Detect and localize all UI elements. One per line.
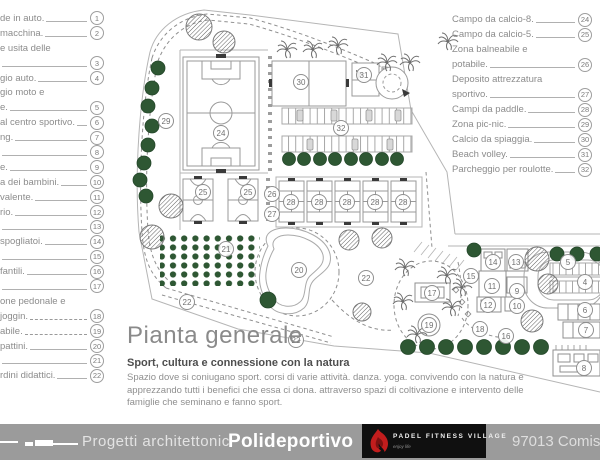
legend-row: Zona balneabile e: [452, 42, 592, 57]
legend-row: ng.7: [0, 130, 104, 145]
legend-number: 22: [90, 369, 104, 383]
legend-number: 8: [90, 145, 104, 159]
legend-leader-line: [25, 334, 87, 335]
legend-label: gio moto e: [0, 87, 44, 98]
legend-leader-line: [528, 112, 575, 113]
legend-row: joggin.18: [0, 309, 104, 324]
footer-label: Progetti architettonici: [82, 433, 234, 450]
legend-leader-line: [15, 140, 87, 141]
legend-label: Deposito attrezzatura: [452, 74, 542, 85]
legend-number: 24: [578, 13, 592, 27]
legend-leader-line: [15, 215, 87, 216]
legend-row: 3: [0, 56, 104, 71]
legend-row: 21: [0, 353, 104, 368]
flame-icon: [365, 427, 391, 455]
legend-number: 11: [90, 190, 104, 204]
legend-number: 1: [90, 11, 104, 25]
footer-bar: Progetti architettonici Polideportivo PA…: [0, 424, 600, 460]
legend-row: spogliatoi.14: [0, 234, 104, 249]
legend-number: 7: [90, 131, 104, 145]
legend-number: 4: [90, 71, 104, 85]
legend-label: valente.: [0, 192, 33, 203]
didactic-garden-grid: [160, 234, 260, 286]
legend-leader-line: [2, 66, 87, 67]
legend-label: pattini.: [0, 341, 28, 352]
legend-leader-line: [30, 349, 87, 350]
legend-row: fantili.16: [0, 264, 104, 279]
legend-leader-line: [45, 36, 87, 37]
legend-row: pattini.20: [0, 339, 104, 354]
legend-leader-line: [2, 289, 87, 290]
legend-number: 25: [578, 28, 592, 42]
legend-number: 14: [90, 235, 104, 249]
legend-label: Campo da calcio-5.: [452, 29, 534, 40]
legend-leader-line: [2, 259, 87, 260]
legend-row: gio auto.4: [0, 71, 104, 86]
legend-leader-line: [490, 97, 575, 98]
legend-leader-line: [57, 378, 87, 379]
legend-leader-line: [534, 142, 575, 143]
legend-row: 13: [0, 219, 104, 234]
legend-row: Beach volley.31: [452, 147, 592, 162]
legend-row: rio.12: [0, 205, 104, 220]
legend-row: 15: [0, 249, 104, 264]
legend-row: Calcio da spiaggia.30: [452, 132, 592, 147]
legend-number: 20: [90, 339, 104, 353]
legend-number: 13: [90, 220, 104, 234]
legend-label: rio.: [0, 207, 13, 218]
legend-label: abile.: [0, 326, 23, 337]
beach-soccer-court: [269, 61, 349, 106]
legend-number: 9: [90, 160, 104, 174]
legend-number: 10: [90, 175, 104, 189]
legend-label: fantili.: [0, 266, 25, 277]
legend-number: 19: [90, 324, 104, 338]
legend-leader-line: [45, 244, 87, 245]
legend-label: Campo da calcio-8.: [452, 14, 534, 25]
legend-number: 32: [578, 163, 592, 177]
legend-label: rdini didattici.: [0, 370, 55, 381]
footer-location: 97013 Comis: [512, 433, 600, 450]
legend-label: ng.: [0, 132, 13, 143]
legend-row: valente.11: [0, 190, 104, 205]
calcio5-courts: [183, 176, 258, 224]
legend-row: macchina.2: [0, 26, 104, 41]
legend-number: 18: [90, 309, 104, 323]
legend-leader-line: [2, 363, 87, 364]
padel-fitness-village-logo: PADEL FITNESS VILLAGE enjoy life: [362, 424, 486, 458]
legend-number: 31: [578, 148, 592, 162]
legend-leader-line: [508, 127, 575, 128]
page-title: Pianta generale: [127, 322, 547, 350]
legend-row: de in auto.1: [0, 11, 104, 26]
legend-leader-line: [61, 185, 87, 186]
legend-leader-line: [510, 157, 575, 158]
legend-row: Campo da calcio-8.24: [452, 12, 592, 27]
legend-label: al centro sportivo.: [0, 117, 75, 128]
legend-number: 28: [578, 103, 592, 117]
legend-number: 17: [90, 279, 104, 293]
legend-row: e.9: [0, 160, 104, 175]
legend-label: potabile.: [452, 59, 488, 70]
legend-leader-line: [10, 110, 87, 111]
caravan-parking: [282, 108, 412, 152]
legend-number: 30: [578, 133, 592, 147]
paddle-courts: [279, 178, 416, 225]
legend-number: 16: [90, 265, 104, 279]
title-block: Pianta generale Sport, cultura e conness…: [127, 322, 547, 410]
logo-tagline: enjoy life: [393, 444, 507, 449]
legend-leader-line: [35, 200, 87, 201]
legend-label: macchina.: [0, 28, 43, 39]
legend-label: Zona balneabile e: [452, 44, 528, 55]
legend-label: Calcio da spiaggia.: [452, 134, 532, 145]
legend-number: 5: [90, 101, 104, 115]
legend-number: 6: [90, 116, 104, 130]
legend-row: one pedonale e: [0, 294, 104, 309]
legend-leader-line: [77, 125, 87, 126]
logo-title: PADEL FITNESS VILLAGE: [393, 433, 507, 440]
legend-label: gio auto.: [0, 73, 36, 84]
legend-leader-line: [536, 37, 575, 38]
legend-number: 12: [90, 205, 104, 219]
legend-label: joggin.: [0, 311, 28, 322]
legend-label: Beach volley.: [452, 149, 508, 160]
legend-label: de in auto.: [0, 13, 44, 24]
east-buildings: [553, 304, 600, 376]
project-name: Polideportivo: [228, 431, 353, 453]
legend-row: e usita delle: [0, 41, 104, 56]
legend-leader-line: [2, 229, 87, 230]
legend-label: e.: [0, 162, 8, 173]
legend-row: al centro sportivo.6: [0, 115, 104, 130]
legend-leader-line: [536, 22, 575, 23]
legend-label: e.: [0, 102, 8, 113]
legend-row: 8: [0, 145, 104, 160]
legend-leader-line: [490, 67, 575, 68]
legend-row: sportivo.27: [452, 87, 592, 102]
legend-row: Deposito attrezzatura: [452, 72, 592, 87]
legend-leader-line: [46, 21, 87, 22]
logo-text: PADEL FITNESS VILLAGE enjoy life: [393, 433, 507, 449]
legend-label: sportivo.: [452, 89, 488, 100]
legend-row: Campo da calcio-5.25: [452, 27, 592, 42]
legend-number: 2: [90, 26, 104, 40]
legend-leader-line: [2, 155, 87, 156]
legend-number: 27: [578, 88, 592, 102]
legend-number: 3: [90, 56, 104, 70]
legend-row: e.5: [0, 100, 104, 115]
legend-row: potabile.26: [452, 57, 592, 72]
plan-sheet: 2429303132252526272828282828212022222217…: [0, 0, 600, 460]
legend-row: gio moto e: [0, 85, 104, 100]
legend-row: Parcheggio per roulotte.32: [452, 162, 592, 177]
soccer-field-24: [183, 54, 259, 173]
legend-right: Campo da calcio-8.24Campo da calcio-5.25…: [452, 12, 592, 177]
legend-number: 15: [90, 250, 104, 264]
legend-number: 26: [578, 58, 592, 72]
legend-label: Zona pic-nic.: [452, 119, 506, 130]
legend-leader-line: [30, 319, 87, 320]
legend-leader-line: [555, 172, 575, 173]
plan-description: Spazio dove si coniugano sport. corsi di…: [127, 372, 543, 410]
legend-label: one pedonale e: [0, 296, 66, 307]
legend-label: spogliatoi.: [0, 236, 43, 247]
legend-number: 29: [578, 118, 592, 132]
legend-row: abile.19: [0, 324, 104, 339]
legend-label: Campi da paddle.: [452, 104, 526, 115]
legend-label: a dei bambini.: [0, 177, 59, 188]
plan-subtitle: Sport, cultura e connessione con la natu…: [127, 357, 547, 369]
legend-leader-line: [10, 170, 87, 171]
legend-row: Zona pic-nic.29: [452, 117, 592, 132]
legend-number: 21: [90, 354, 104, 368]
legend-leader-line: [27, 274, 87, 275]
legend-row: 17: [0, 279, 104, 294]
legend-row: a dei bambini.10: [0, 175, 104, 190]
legend-label: e usita delle: [0, 43, 51, 54]
legend-row: rdini didattici.22: [0, 368, 104, 383]
legend-left: de in auto.1macchina.2e usita delle3gio …: [0, 11, 104, 383]
legend-label: Parcheggio per roulotte.: [452, 164, 553, 175]
legend-row: Campi da paddle.28: [452, 102, 592, 117]
legend-leader-line: [38, 81, 87, 82]
